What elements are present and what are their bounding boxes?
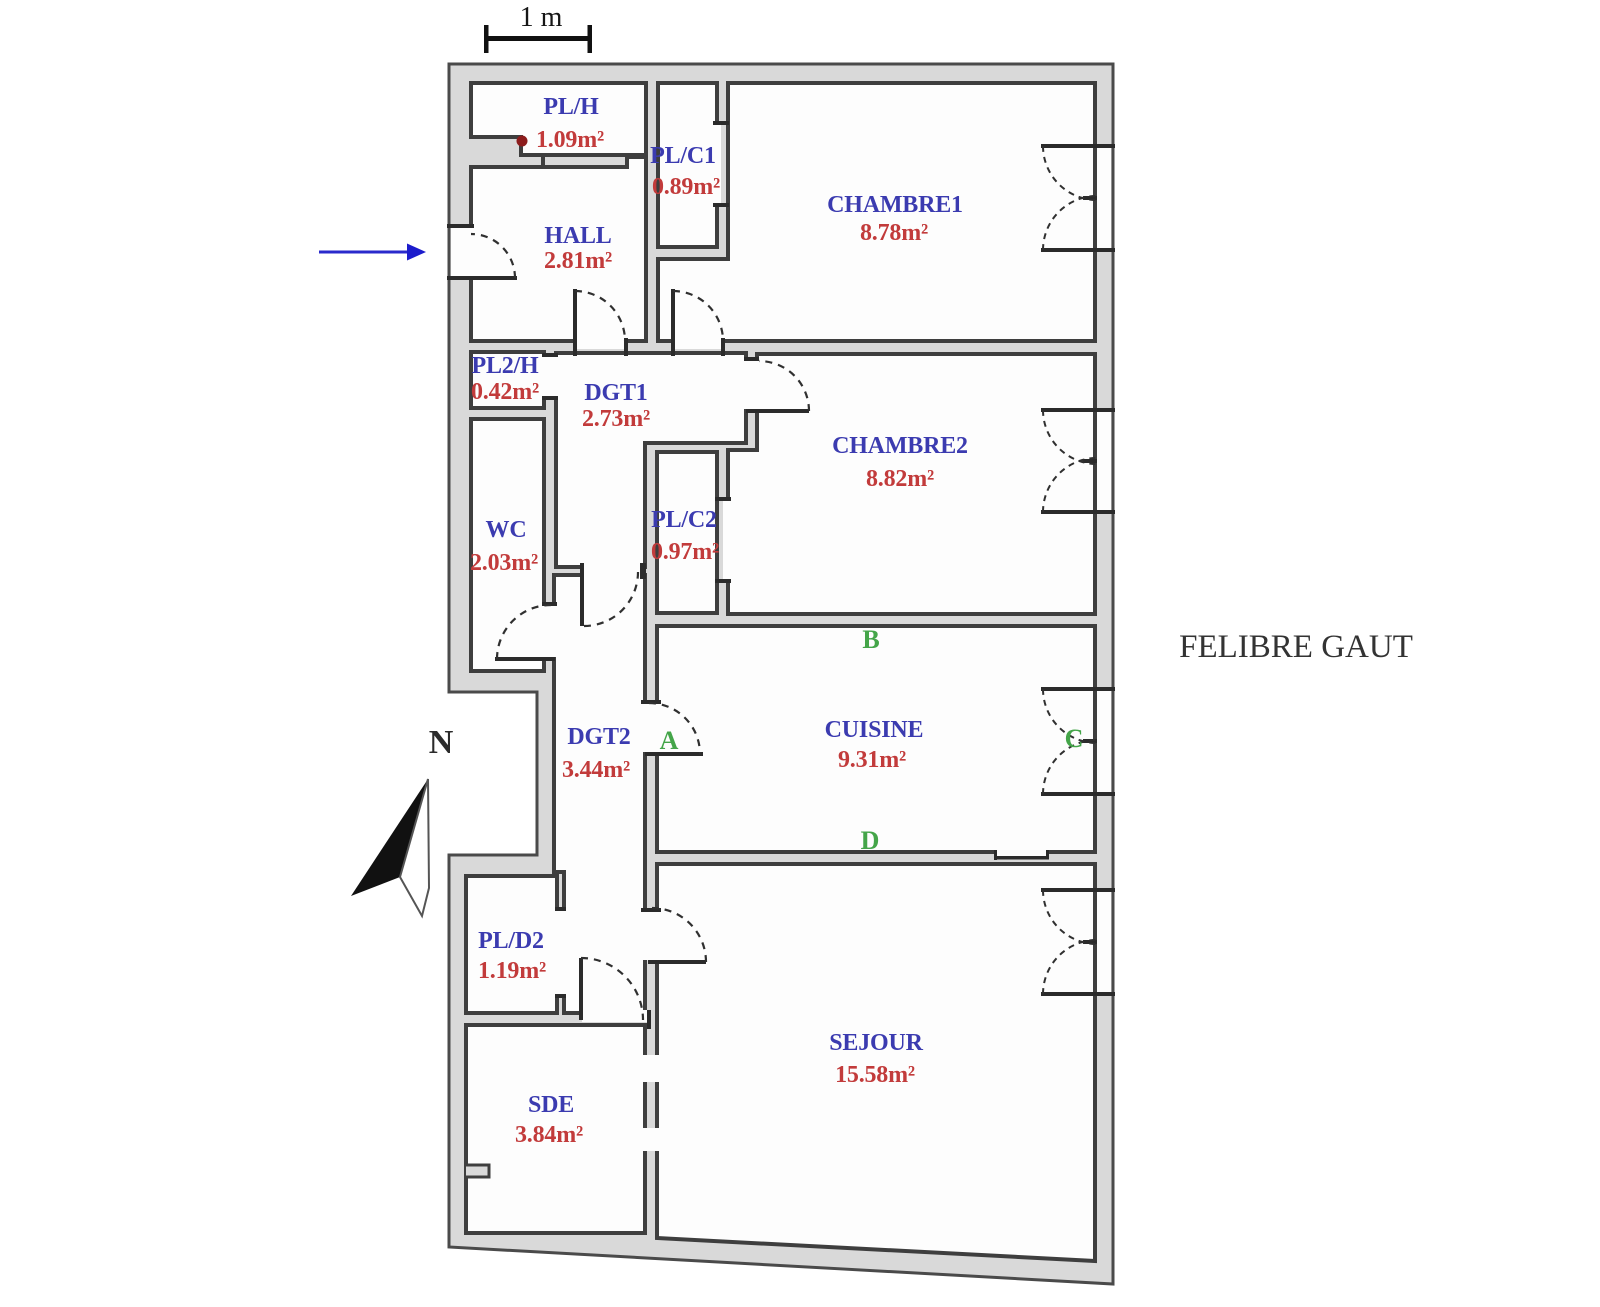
svg-text:A: A xyxy=(660,726,679,755)
svg-text:PL2/H: PL2/H xyxy=(471,353,539,379)
svg-text:9.31m²: 9.31m² xyxy=(838,747,906,773)
svg-text:2.81m²: 2.81m² xyxy=(544,248,612,274)
svg-text:B: B xyxy=(862,625,879,654)
svg-text:15.58m²: 15.58m² xyxy=(835,1062,915,1088)
svg-text:D: D xyxy=(861,826,880,855)
svg-text:0.42m²: 0.42m² xyxy=(471,379,539,405)
svg-text:FELIBRE GAUT: FELIBRE GAUT xyxy=(1179,629,1413,665)
svg-text:PL/C1: PL/C1 xyxy=(650,143,716,169)
svg-text:PL/C2: PL/C2 xyxy=(651,507,717,533)
svg-text:2.73m²: 2.73m² xyxy=(582,406,650,432)
svg-text:HALL: HALL xyxy=(544,223,611,249)
svg-text:DGT1: DGT1 xyxy=(584,380,647,406)
svg-text:N: N xyxy=(429,724,454,761)
svg-text:CHAMBRE1: CHAMBRE1 xyxy=(827,192,963,218)
svg-text:0.89m²: 0.89m² xyxy=(652,174,720,200)
svg-text:WC: WC xyxy=(486,517,527,543)
svg-text:SEJOUR: SEJOUR xyxy=(829,1030,923,1056)
svg-text:8.82m²: 8.82m² xyxy=(866,466,934,492)
svg-text:1.09m²: 1.09m² xyxy=(536,127,604,153)
svg-text:DGT2: DGT2 xyxy=(567,724,630,750)
svg-text:3.44m²: 3.44m² xyxy=(562,757,630,783)
svg-text:SDE: SDE xyxy=(528,1092,574,1118)
svg-text:2.03m²: 2.03m² xyxy=(470,550,538,576)
svg-text:C: C xyxy=(1065,724,1084,753)
svg-text:1.19m²: 1.19m² xyxy=(478,958,546,984)
svg-text:8.78m²: 8.78m² xyxy=(860,220,928,246)
svg-text:PL/H: PL/H xyxy=(543,94,599,120)
svg-text:PL/D2: PL/D2 xyxy=(478,928,544,954)
svg-text:3.84m²: 3.84m² xyxy=(515,1122,583,1148)
svg-text:CHAMBRE2: CHAMBRE2 xyxy=(832,433,968,459)
svg-text:0.97m²: 0.97m² xyxy=(651,539,719,565)
svg-text:CUISINE: CUISINE xyxy=(825,717,924,743)
svg-text:1 m: 1 m xyxy=(520,2,563,33)
